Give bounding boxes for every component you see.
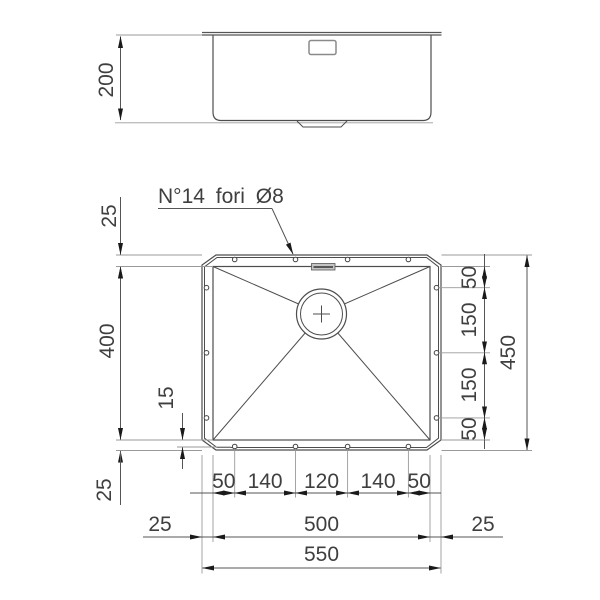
overall-height-dimension-label: 450 [497, 335, 520, 370]
fixing-holes [204, 257, 439, 449]
hole-left-3 [204, 416, 209, 421]
depth-dimension-label: 200 [95, 62, 118, 97]
drain-outlet-side [297, 121, 347, 127]
bowl-height-dimension-label: 400 [96, 323, 119, 358]
right-chain-label-4: 50 [458, 417, 481, 440]
bottom-dimensions: 50 140 120 140 50 25 500 25 550 [143, 470, 503, 568]
rim-inner-outline [205, 258, 439, 448]
right-chain-label-1: 50 [458, 266, 481, 289]
hole-right-3 [434, 416, 439, 421]
flange-bottom-dimension-label: 25 [93, 478, 116, 501]
hole-right-1 [434, 285, 439, 290]
bottom-chain-label-4: 140 [360, 470, 395, 493]
flange-top-dimension-label: 25 [98, 204, 121, 227]
drawing-canvas: 200 N°14 fori Ø8 [0, 0, 600, 600]
overall-width-dimension-label: 550 [304, 543, 339, 566]
holes-note-label: N°14 fori Ø8 [158, 185, 284, 208]
left-dimensions: 25 400 25 15 [93, 197, 183, 505]
holes-note: N°14 fori Ø8 [158, 185, 293, 254]
hole-left-2 [204, 351, 209, 356]
bottom-chain-label-5: 50 [408, 470, 431, 493]
right-chain-label-3: 150 [458, 367, 481, 402]
plan-view [202, 255, 441, 450]
hole-top-1 [232, 257, 237, 262]
flange-right-dimension-label: 25 [471, 513, 494, 536]
note-leader-line [272, 209, 293, 255]
bottom-chain-label-2: 140 [248, 470, 283, 493]
hole-bottom-4 [406, 444, 411, 449]
hole-bottom-1 [232, 444, 237, 449]
side-view: 200 [95, 33, 442, 128]
hole-left-1 [204, 285, 209, 290]
hole-top-2 [293, 257, 298, 262]
hole-bottom-3 [345, 444, 350, 449]
rim-outer-outline [202, 255, 441, 450]
hole-bottom-2 [293, 444, 298, 449]
bottom-chain-label-1: 50 [212, 470, 235, 493]
hole-top-4 [406, 257, 411, 262]
right-dimensions: 50 150 150 50 450 [458, 254, 527, 450]
technical-drawing-sink: 200 N°14 fori Ø8 [0, 0, 600, 600]
flange-left-dimension-label: 25 [148, 513, 171, 536]
hole-right-2 [434, 351, 439, 356]
bottom-chain-label-3: 120 [304, 470, 339, 493]
bowl-width-dimension-label: 500 [304, 513, 339, 536]
right-chain-label-2: 150 [458, 302, 481, 337]
hole-offset-dimension-label: 15 [155, 386, 178, 409]
overflow-box-side [309, 41, 336, 55]
hole-top-3 [345, 257, 350, 262]
